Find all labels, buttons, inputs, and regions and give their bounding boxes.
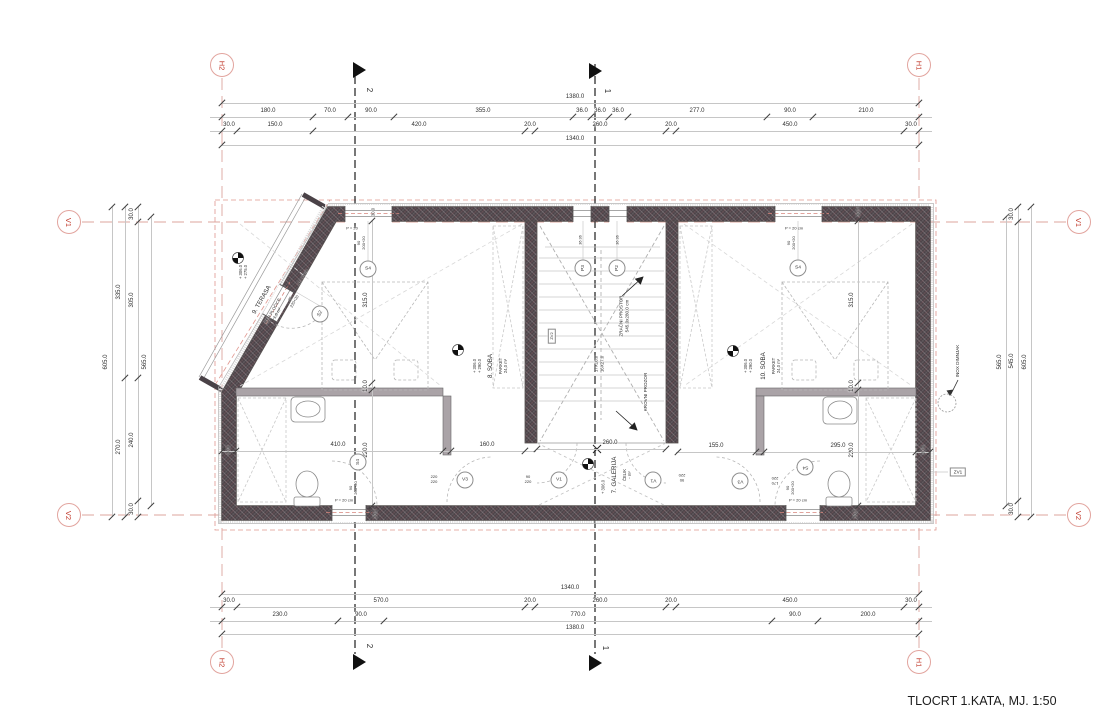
dim-value-top-detail-1: 90.0 xyxy=(365,108,377,114)
ann-room8-sub: PARKET 24,0 m² xyxy=(498,358,509,374)
dim-value-top-detail-2: 20.0 xyxy=(524,122,536,128)
ann-section-1-top: 1 xyxy=(602,89,612,93)
ann-section-1-bottom: 1 xyxy=(600,646,610,650)
ann-room10-name: 10. SOBA xyxy=(760,352,768,380)
dim-value-top-detail-2: 30.0 xyxy=(223,122,235,128)
marker-label: S4 xyxy=(802,465,808,470)
dim-value-top-detail-1: 355.0 xyxy=(475,108,490,114)
marker-s4-0: S4 xyxy=(360,261,377,278)
grid-marker-h1-1: H1 xyxy=(907,53,931,77)
ann-wall-dim-bottom-right: 30.0 xyxy=(852,510,857,518)
ann-terrace-elev: + 306.0 + 275.0 xyxy=(238,265,249,279)
marker-label: V1 xyxy=(650,478,656,483)
marker-v3-7: V3 xyxy=(457,472,474,489)
dim-value-bottom-detail-2: 230.0 xyxy=(272,612,287,618)
dim-value-right-inner: 565.0 xyxy=(997,354,1003,369)
dim-line-gallery-width xyxy=(537,449,666,450)
dim-tick-room10-vertical xyxy=(854,502,861,509)
marker-s4-9: S4 xyxy=(350,454,367,471)
dim-value-bottom-total-outer: 1380.0 xyxy=(566,625,584,631)
ann-wall-dim-bath-left: 30.0 xyxy=(225,446,230,454)
dim-line-bottom-detail-2 xyxy=(210,621,932,622)
dim-line-left-inner xyxy=(151,217,152,506)
labels-layer: 1380.0180.070.090.0355.036.036.036.0277.… xyxy=(0,0,1097,718)
dim-value-bottom-detail-1: 30.0 xyxy=(905,598,917,604)
dim-line-top-total-inner xyxy=(222,145,919,146)
dim-value-room8-vertical: 315.0 xyxy=(363,292,369,307)
ann-door-frac-gallery-right: 90 220 xyxy=(679,473,686,483)
ann-section-2-bottom: 2 xyxy=(364,644,374,648)
dim-value-bottom-detail-1: 20.0 xyxy=(665,598,677,604)
dim-value-top-detail-1: 36.0 xyxy=(594,108,606,114)
grid-marker-v2-7: V2 xyxy=(1067,503,1091,527)
dim-value-bottom-detail-1: 450.0 xyxy=(782,598,797,604)
dim-line-top-detail-2 xyxy=(210,131,932,132)
dim-line-bottom-total-outer xyxy=(222,634,919,635)
marker-s4-10: S4 xyxy=(797,459,814,476)
dim-tick-right-total xyxy=(1027,513,1034,520)
ann-gallery-sub: ČELIK - m² xyxy=(622,469,633,481)
grid-marker-label: V2 xyxy=(1075,510,1084,519)
ann-win-bl-size: 90 200+20 xyxy=(348,481,358,494)
marker-v1-6: V1 xyxy=(645,472,662,489)
ann-chimney-label: INOX DIMNJAK xyxy=(955,345,961,378)
grid-marker-v1-6: V1 xyxy=(1067,210,1091,234)
marker-s2-1: S2 xyxy=(312,306,329,323)
ann-roofwin-dim-left: 36 36 xyxy=(579,235,584,245)
dim-line-right-inner xyxy=(1006,217,1007,506)
dim-value-left-inner: 565.0 xyxy=(142,354,148,369)
grid-marker-label: H2 xyxy=(218,657,227,667)
dim-value-gallery-width: 260.0 xyxy=(602,440,617,446)
dim-tick-top-total-inner xyxy=(915,141,922,148)
dim-value-top-total-inner: 1340.0 xyxy=(566,136,584,142)
dim-line-bottom-detail-1 xyxy=(210,607,932,608)
dim-value-right-detail: 30.0 xyxy=(1009,208,1015,220)
ann-gallery-name: 7. GALERIJA xyxy=(611,457,619,494)
dim-value-left-mid: 270.0 xyxy=(116,439,122,454)
dim-value-left-detail: 30.0 xyxy=(129,503,135,515)
dim-value-bath-right: 295.0 xyxy=(830,443,845,449)
dim-value-top-detail-2: 150.0 xyxy=(267,122,282,128)
dim-tick-gallery-width xyxy=(662,445,669,452)
dim-value-bath-left: 410.0 xyxy=(330,442,345,448)
dim-line-bath-left xyxy=(222,451,536,452)
ann-door-frac-bath-left: 220 220 xyxy=(431,474,438,484)
dim-line-bottom-total-inner xyxy=(222,594,919,595)
dim-tick-bath-right xyxy=(926,448,933,455)
ann-wall-dim-top-right: 30.0 xyxy=(855,208,860,216)
dim-value-top-detail-1: 36.0 xyxy=(576,108,588,114)
ann-section-2-top: 2 xyxy=(364,88,374,92)
dim-tick-right-detail xyxy=(1014,513,1021,520)
dim-value-bottom-detail-1: 20.0 xyxy=(524,598,536,604)
marker-label: V3 xyxy=(737,479,743,484)
grid-marker-v1-4: V1 xyxy=(57,210,81,234)
ann-wall-dim-bath-right: 30.0 xyxy=(920,446,925,454)
ann-terrace-door-size: 90 220+20 xyxy=(284,292,299,309)
grid-marker-h1-3: H1 xyxy=(907,650,931,674)
ann-door-frac-gallery-left: 90 220 xyxy=(525,474,532,484)
dim-value-room10-vertical: 220.0 xyxy=(849,442,855,457)
dim-value-top-detail-1: 36.0 xyxy=(612,108,624,114)
dim-value-bottom-detail-1: 260.0 xyxy=(592,598,607,604)
grid-marker-h2-0: H2 xyxy=(210,53,234,77)
dim-line-left-mid xyxy=(125,207,126,517)
grid-marker-label: H1 xyxy=(915,60,924,70)
dim-value-top-detail-2: 30.0 xyxy=(905,122,917,128)
grid-marker-h2-2: H2 xyxy=(210,650,234,674)
dim-tick-left-detail xyxy=(134,513,141,520)
dim-value-left-mid: 335.0 xyxy=(116,284,122,299)
dim-value-top-detail-2: 450.0 xyxy=(782,122,797,128)
marker-p2-4: P2 xyxy=(609,260,626,277)
ann-win-br-parapet: P = 20 cm xyxy=(789,498,807,503)
ann-win-bl-parapet: P = 20 cm xyxy=(335,498,353,503)
dim-value-top-detail-1: 90.0 xyxy=(784,108,796,114)
ann-door-frac-bath-right: 170 220 xyxy=(772,476,779,486)
ann-room8-name: 8. SOBA xyxy=(487,354,495,378)
ann-zv2-label: ZV2 xyxy=(548,328,556,343)
ann-terrace-door-parapet: P = 0 cm xyxy=(297,269,309,285)
ann-room8-elev: + 306.0 + 290.0 xyxy=(472,359,483,373)
marker-label: S4 xyxy=(355,459,360,465)
grid-marker-label: H2 xyxy=(218,60,227,70)
dim-value-bottom-total-inner: 1340.0 xyxy=(561,585,579,591)
dim-value-right-total: 605.0 xyxy=(1022,354,1028,369)
ann-gallery-elev: + 306.0 xyxy=(600,480,605,494)
dim-value-top-detail-1: 277.0 xyxy=(689,108,704,114)
dim-value-bottom-detail-1: 570.0 xyxy=(373,598,388,604)
dim-value-room8-vertical: 10.0 xyxy=(363,380,369,392)
ann-win-tl-parapet: P = 20 xyxy=(346,226,358,231)
ann-zv1-label: ZV1 xyxy=(950,467,966,476)
dim-value-left-detail: 305.0 xyxy=(129,292,135,307)
dim-tick-left-mid xyxy=(121,513,128,520)
marker-label: S4 xyxy=(365,267,371,272)
dim-value-top-detail-2: 260.0 xyxy=(592,122,607,128)
dim-value-top-detail-2: 20.0 xyxy=(665,122,677,128)
dim-tick-bottom-total-outer xyxy=(915,630,922,637)
ann-wall-dim-top-left: 30.0 xyxy=(370,208,375,216)
dim-tick-left-inner xyxy=(147,502,154,509)
marker-label: P2 xyxy=(614,265,619,271)
dim-tick-top-total-outer xyxy=(915,99,922,106)
dim-value-top-detail-1: 210.0 xyxy=(858,108,873,114)
dim-line-right-detail xyxy=(1018,207,1019,517)
dim-value-top-detail-2: 420.0 xyxy=(411,122,426,128)
dim-value-bottom-detail-2: 200.0 xyxy=(860,612,875,618)
ann-terrace-sub: KER.PLOČICE 1,6 m² xyxy=(263,297,286,327)
dim-value-bath-left: 160.0 xyxy=(479,442,494,448)
marker-label: S2 xyxy=(316,310,323,318)
ann-win-tr-parapet: P = 20 cm xyxy=(785,226,803,231)
marker-label: P3 xyxy=(580,265,585,271)
dim-value-top-detail-1: 180.0 xyxy=(260,108,275,114)
dim-value-left-total: 605.0 xyxy=(103,354,109,369)
grid-marker-label: H1 xyxy=(915,657,924,667)
floorplan-canvas: 1380.0180.070.090.0355.036.036.036.0277.… xyxy=(0,0,1097,718)
dim-line-top-total-outer xyxy=(222,103,919,104)
ann-wall-dim-bottom-left: 30.0 xyxy=(372,510,377,518)
grid-marker-label: V1 xyxy=(65,217,74,226)
dim-tick-room8-vertical xyxy=(368,502,375,509)
dim-value-right-detail: 30.0 xyxy=(1009,503,1015,515)
ann-room10-sub: PARKET 24,0 m² xyxy=(771,358,782,374)
dim-line-left-detail xyxy=(138,207,139,517)
dim-value-left-detail: 30.0 xyxy=(129,208,135,220)
grid-marker-label: V1 xyxy=(1075,217,1084,226)
ann-roof-window-label: KROVNI PROZOR xyxy=(643,373,649,412)
dim-line-bath-right xyxy=(676,452,930,453)
dim-line-left-total xyxy=(112,207,113,517)
marker-s4-2: S4 xyxy=(790,260,807,277)
dim-value-top-detail-1: 70.0 xyxy=(324,108,336,114)
dim-tick-left-total xyxy=(108,513,115,520)
ann-void-label: ZRAČNI PROSTOR 545.0x280.0 cm xyxy=(618,295,629,336)
grid-marker-label: V2 xyxy=(65,510,74,519)
ann-stair-dims: 17X16.0 16X27.0 xyxy=(594,356,605,372)
dim-value-bottom-detail-2: 90.0 xyxy=(789,612,801,618)
ann-win-tl-size: 90 200+20 xyxy=(356,236,366,249)
marker-label: V1 xyxy=(556,478,562,483)
dim-value-bottom-detail-2: 90.0 xyxy=(355,612,367,618)
dim-value-top-total-outer: 1380.0 xyxy=(566,94,584,100)
ann-win-br-size: 90 200+20 xyxy=(785,481,795,494)
ann-room10-elev: + 306.0 + 290.0 xyxy=(743,359,754,373)
grid-marker-v2-5: V2 xyxy=(57,503,81,527)
dim-value-bottom-detail-1: 30.0 xyxy=(223,598,235,604)
ann-win-tr-size: 90 200+20 xyxy=(786,236,796,249)
marker-v1-5: V1 xyxy=(551,472,568,489)
marker-label: V3 xyxy=(462,478,468,483)
marker-v3-8: V3 xyxy=(732,473,749,490)
dim-line-right-total xyxy=(1031,207,1032,517)
dim-value-bath-right: 155.0 xyxy=(708,443,723,449)
dim-value-bottom-detail-2: 770.0 xyxy=(570,612,585,618)
dim-value-left-detail: 240.0 xyxy=(129,432,135,447)
dim-value-room10-vertical: 315.0 xyxy=(849,292,855,307)
ann-roofwin-dim-right: 36 36 xyxy=(616,235,621,245)
dim-value-right-detail: 545.0 xyxy=(1009,353,1015,368)
drawing-title: TLOCRT 1.KATA, MJ. 1:50 xyxy=(907,694,1056,708)
marker-p3-3: P3 xyxy=(575,260,592,277)
dim-value-room10-vertical: 10.0 xyxy=(849,380,855,392)
marker-label: S4 xyxy=(795,266,801,271)
dim-line-room10-vertical xyxy=(858,221,859,506)
